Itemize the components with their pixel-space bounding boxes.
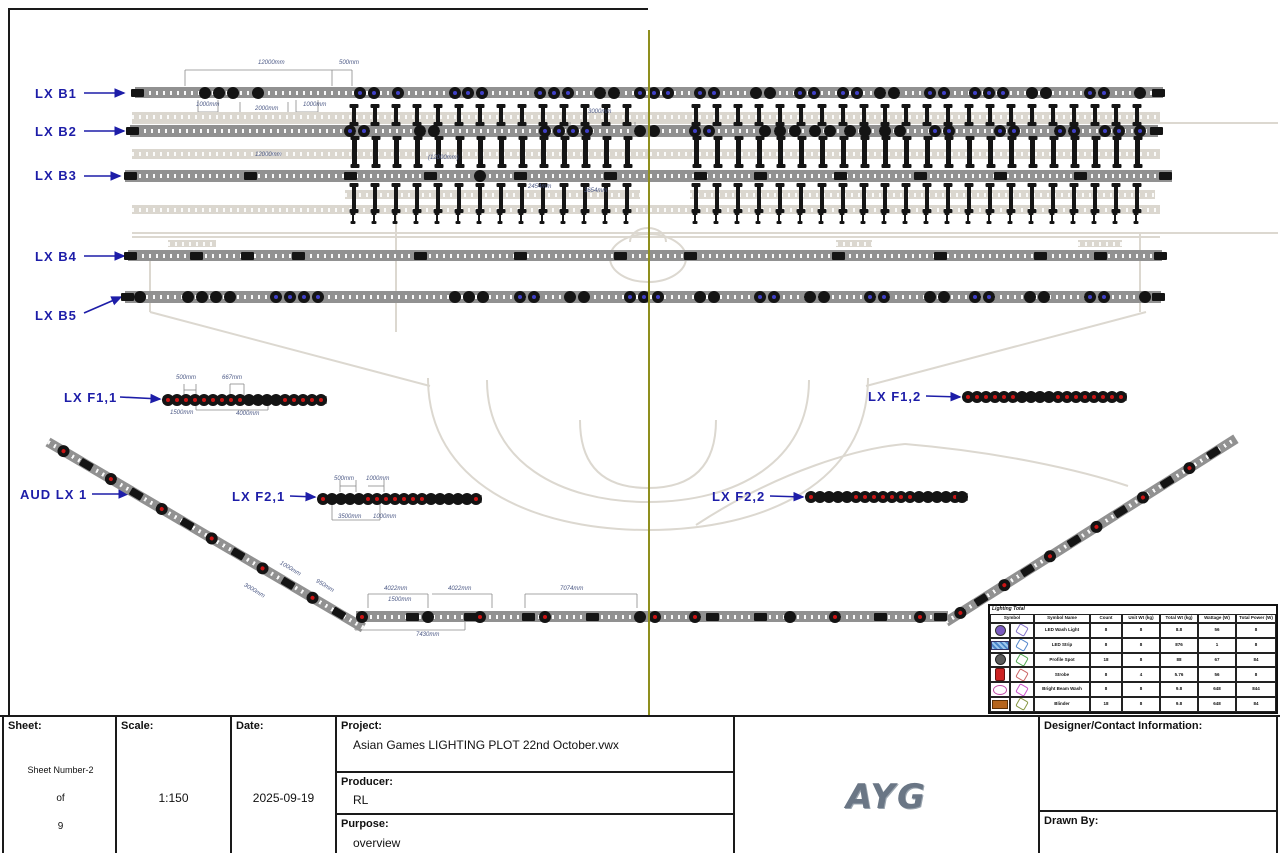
legend-value: 18 [1090, 697, 1122, 712]
fixture [1020, 564, 1035, 578]
fixture [824, 125, 836, 137]
hanging-fixture [1114, 214, 1116, 222]
fixture [943, 125, 955, 137]
fixture [562, 87, 574, 99]
fixture [1134, 125, 1146, 137]
fixture [794, 87, 806, 99]
fixture [888, 87, 900, 99]
fixture [750, 87, 762, 99]
hanging-fixture [352, 185, 356, 211]
hanging-fixture [352, 106, 356, 124]
fixture [121, 293, 134, 301]
dimension-label: 1000mm [303, 102, 326, 108]
hanging-fixture [1030, 214, 1032, 222]
hanging-fixture [862, 106, 866, 124]
leader-arrow [120, 397, 160, 399]
hanging-fixture [736, 138, 741, 166]
legend-fixture-icon [1010, 697, 1034, 712]
fixture [1098, 87, 1110, 99]
fixture [634, 87, 646, 99]
hanging-fixture [457, 106, 461, 124]
fixture [180, 517, 195, 530]
divider [337, 771, 733, 773]
legend-fixture-icon [1010, 653, 1034, 668]
fixture [1135, 489, 1152, 506]
hanging-fixture [583, 106, 587, 124]
fixture [331, 606, 346, 619]
background-truss [132, 149, 1160, 159]
position-label: LX F1,2 [868, 389, 921, 404]
position-label: LX B5 [35, 308, 77, 323]
position-label: LX B4 [35, 249, 77, 264]
fixture [764, 87, 776, 99]
hanging-fixture [415, 214, 417, 222]
legend-title: Lighting Total [992, 606, 1025, 612]
fixture [809, 125, 821, 137]
hanging-fixture [625, 185, 629, 211]
legend-value: 5.76 [1160, 667, 1198, 682]
hanging-fixture [904, 106, 908, 124]
fixture-glyph-icon [1015, 683, 1029, 697]
fixture [844, 125, 856, 137]
legend-fixture-icon [1010, 638, 1034, 653]
hanging-fixture [1030, 185, 1034, 211]
scale-label: Scale: [121, 720, 153, 732]
fixture [414, 125, 426, 137]
fixture [859, 125, 871, 137]
fixture [874, 87, 886, 99]
hanging-fixture [736, 214, 738, 222]
hanging-fixture [820, 214, 822, 222]
legend-value: 8.8 [1160, 623, 1198, 638]
legend-value: 8 [1236, 667, 1276, 682]
dimension-label: (12000mm) [428, 155, 459, 161]
hanging-fixture [478, 185, 482, 211]
hanging-fixture [373, 214, 375, 222]
hanging-fixture [862, 138, 867, 166]
fixture [476, 87, 488, 99]
hanging-fixture [478, 214, 480, 222]
hanging-fixture [925, 185, 929, 211]
hanging-fixture [541, 214, 543, 222]
fixture [292, 252, 305, 260]
dimension-label: 500mm [334, 476, 354, 482]
legend-header: Count [1090, 614, 1122, 623]
legend-value: 844 [1236, 682, 1276, 697]
legend-value: 8 [1090, 667, 1122, 682]
fixture [514, 172, 527, 180]
divider [337, 813, 733, 815]
background-truss [132, 112, 1160, 122]
fixture [344, 172, 357, 180]
fixture [983, 291, 995, 303]
fixture [548, 87, 560, 99]
fixture [878, 291, 890, 303]
dimension-label: 1000mm [366, 476, 389, 482]
fixture [634, 125, 646, 137]
hanging-fixture [736, 185, 740, 211]
fixture [874, 613, 887, 621]
fixture [934, 613, 947, 621]
fixture [974, 593, 989, 607]
legend-value: 88 [1160, 653, 1198, 668]
fixture [1152, 89, 1165, 97]
fixture [818, 291, 830, 303]
fixture [997, 87, 1009, 99]
legend-value: 84 [1236, 653, 1276, 668]
fixture [586, 613, 599, 621]
hanging-fixture [1114, 138, 1119, 166]
dimension-label: 3654mm [584, 188, 607, 194]
fixture [204, 530, 220, 546]
hanging-fixture [1072, 214, 1074, 222]
hanging-fixture [757, 106, 761, 124]
fixture [662, 87, 674, 99]
stage-arc [696, 444, 905, 525]
hanging-fixture [1093, 214, 1095, 222]
fixture [1034, 252, 1047, 260]
legend-value: 9.8 [1160, 697, 1198, 712]
legend-value: 9.8 [1160, 682, 1198, 697]
sheet-of-label: of [4, 793, 117, 804]
legend-value: 648 [1198, 697, 1236, 712]
fixture [477, 291, 489, 303]
hanging-fixture [715, 138, 720, 166]
fixture [474, 611, 486, 623]
hanging-fixture [694, 106, 698, 124]
fixture [924, 291, 936, 303]
fixture [56, 443, 72, 459]
fixture [708, 291, 720, 303]
legend-value: 8 [1090, 623, 1122, 638]
hanging-fixture [541, 106, 545, 124]
fixture [210, 291, 222, 303]
hanging-fixture [520, 106, 524, 124]
fixture [1159, 476, 1174, 490]
date-label: Date: [236, 720, 264, 732]
fixture [392, 87, 404, 99]
producer-value: RL [353, 793, 368, 807]
gray-circle-icon [995, 654, 1006, 665]
legend-value: 8 [1122, 638, 1160, 653]
purpose-label: Purpose: [341, 818, 389, 830]
leader-arrow [926, 396, 960, 397]
legend-header: Wattage (W) [1198, 614, 1236, 623]
sheet-number: Sheet Number-2 [4, 765, 117, 775]
fixture [649, 611, 661, 623]
fixture [914, 611, 926, 623]
legend-name: LED Wash Light [1034, 623, 1090, 638]
hanging-fixture [352, 214, 354, 222]
hanging-fixture [799, 214, 801, 222]
hanging-fixture [1051, 106, 1055, 124]
fixture [578, 291, 590, 303]
fixture [227, 87, 239, 99]
hanging-fixture [988, 214, 990, 222]
fixture [134, 291, 146, 303]
fixture [528, 291, 540, 303]
fixture [837, 87, 849, 99]
fixture-glyph-icon [1015, 624, 1029, 638]
fixture [1099, 125, 1111, 137]
fixture [768, 291, 780, 303]
legend-value: 84 [1236, 697, 1276, 712]
truss-bar [128, 250, 1162, 261]
scale-value: 1:150 [117, 791, 230, 805]
legend-value: 876 [1160, 638, 1198, 653]
fixture [280, 577, 295, 590]
hanging-fixture [394, 138, 399, 166]
legend-header: Unit Wt (kg) [1122, 614, 1160, 623]
leader-arrow [290, 496, 315, 497]
fixture [1150, 127, 1163, 135]
dimension-label: 1000mm [196, 102, 219, 108]
hanging-fixture [436, 214, 438, 222]
hanging-fixture [457, 214, 459, 222]
fixture [298, 291, 310, 303]
fixture [129, 488, 144, 501]
fixture [567, 125, 579, 137]
fixture [938, 291, 950, 303]
legend-header: Total Wt (kg) [1160, 614, 1198, 623]
blue-strip-icon [991, 641, 1009, 650]
fixture [254, 560, 270, 576]
legend-value: 8 [1122, 653, 1160, 668]
fixture [1066, 534, 1081, 548]
legend-name: Strobe [1034, 667, 1090, 682]
fixture [462, 87, 474, 99]
hanging-fixture [415, 138, 420, 166]
hanging-fixture [946, 106, 950, 124]
hanging-fixture [1051, 185, 1055, 211]
dimension-label: 3000mm [242, 582, 265, 599]
dimension-label: 2454mm [528, 184, 551, 190]
hanging-fixture [415, 185, 419, 211]
diagonal-truss-bar [943, 434, 1238, 626]
fixture [564, 291, 576, 303]
background-truss [1078, 240, 1122, 247]
fixture [1038, 291, 1050, 303]
dimension-label: 500mm [176, 375, 196, 381]
hanging-fixture [1135, 185, 1139, 211]
hanging-fixture [967, 138, 972, 166]
fixture [213, 87, 225, 99]
fixture [703, 125, 715, 137]
designer-label: Designer/Contact Information: [1044, 720, 1202, 732]
hanging-fixture [562, 214, 564, 222]
fixture [1026, 87, 1038, 99]
hanging-fixture [604, 138, 609, 166]
legend-fixture-icon [1010, 623, 1034, 638]
divider [1040, 810, 1276, 812]
hanging-fixture [436, 138, 441, 166]
legend-symbol-swatch [990, 653, 1010, 668]
fixture [470, 493, 482, 505]
hanging-fixture [1093, 138, 1098, 166]
hanging-fixture [352, 138, 357, 166]
hanging-fixture [946, 214, 948, 222]
fixture [1206, 446, 1221, 460]
stage-arc [866, 312, 1146, 386]
fixture [414, 252, 427, 260]
hanging-fixture [583, 138, 588, 166]
fixture [1008, 125, 1020, 137]
lighting-plot-sheet: 12000mm500mm1000mm2000mm1000mm3000mm1200… [0, 0, 1280, 853]
purple-circle-icon [995, 625, 1006, 636]
legend-header: Symbol Name [1034, 614, 1090, 623]
legend-value: 18 [1090, 653, 1122, 668]
fixture [759, 125, 771, 137]
hanging-fixture [457, 185, 461, 211]
stage-arc [905, 444, 1128, 486]
position-label: LX B1 [35, 86, 77, 101]
fixture [594, 87, 606, 99]
dimension-label: 1500mm [170, 410, 193, 416]
dimension-label: 4022mm [384, 586, 407, 592]
hanging-fixture [715, 214, 717, 222]
hanging-fixture [715, 185, 719, 211]
dimension-label: 500mm [339, 60, 359, 66]
dimension-label: 3500mm [338, 514, 361, 520]
hanging-fixture [499, 214, 501, 222]
fixture [553, 125, 565, 137]
fixture [708, 87, 720, 99]
hanging-fixture [799, 106, 803, 124]
fixture [126, 127, 139, 135]
legend-value: 8 [1090, 638, 1122, 653]
dimension-label: 4000mm [236, 411, 259, 417]
fixture [834, 172, 847, 180]
dimension-label: 667mm [222, 375, 242, 381]
fixture [1040, 87, 1052, 99]
fixture [952, 605, 969, 622]
hanging-fixture [1009, 185, 1013, 211]
hanging-fixture [1030, 106, 1034, 124]
hanging-fixture [862, 185, 866, 211]
fixture [789, 125, 801, 137]
hanging-fixture [1072, 185, 1076, 211]
hanging-fixture [562, 106, 566, 124]
hanging-fixture [394, 106, 398, 124]
hanging-fixture [436, 106, 440, 124]
hanging-fixture [562, 138, 567, 166]
fixture [422, 611, 434, 623]
logo-cell: AYG [735, 717, 1040, 853]
hanging-fixture [499, 185, 503, 211]
hanging-fixture [373, 138, 378, 166]
fixture [539, 125, 551, 137]
legend-header: Symbol [990, 614, 1034, 623]
position-label: LX B2 [35, 124, 77, 139]
hanging-fixture [457, 138, 462, 166]
hanging-fixture [778, 106, 782, 124]
project-label: Project: [341, 720, 382, 732]
dimension-label: 12000mm [258, 60, 285, 66]
legend-value: 1 [1198, 638, 1236, 653]
fixture [1094, 252, 1107, 260]
hanging-fixture [625, 106, 629, 124]
fixture [344, 125, 356, 137]
hanging-fixture [841, 214, 843, 222]
dimension-label: 7430mm [416, 632, 439, 638]
fixture [315, 394, 327, 406]
fixture [103, 471, 119, 487]
hanging-fixture [499, 138, 504, 166]
legend-value: 56 [1198, 667, 1236, 682]
fixture [808, 87, 820, 99]
background-truss [168, 240, 216, 247]
dimension-label: 1000mm [373, 514, 396, 520]
fixture [754, 613, 767, 621]
legend-value: 8 [1122, 682, 1160, 697]
hanging-fixture [799, 138, 804, 166]
project-value: Asian Games LIGHTING PLOT 22nd October.v… [353, 738, 619, 752]
fixture [929, 125, 941, 137]
hanging-fixture [1009, 138, 1014, 166]
fixture [1074, 172, 1087, 180]
hanging-fixture [694, 214, 696, 222]
hanging-fixture [841, 138, 846, 166]
hanging-fixture [967, 214, 969, 222]
legend-header: Total Power (W) [1236, 614, 1276, 623]
legend-value: 8 [1122, 697, 1160, 712]
fixture [354, 87, 366, 99]
hanging-fixture [1051, 138, 1056, 166]
title-block: Sheet: Sheet Number-2 of 9 Scale: 1:150 … [0, 715, 1280, 853]
fixture [449, 87, 461, 99]
scale-cell: Scale: 1:150 [117, 717, 232, 853]
fixture [356, 611, 368, 623]
fixture [79, 458, 94, 471]
legend-value: 8 [1122, 623, 1160, 638]
fixture [1113, 505, 1128, 519]
fixture [652, 291, 664, 303]
hanging-fixture [841, 106, 845, 124]
fixture [774, 125, 786, 137]
fixture [406, 613, 419, 621]
hanging-fixture [1072, 138, 1077, 166]
fixture [1054, 125, 1066, 137]
fixture [1084, 87, 1096, 99]
center-line [648, 30, 650, 715]
fixture [624, 291, 636, 303]
dimension-label: 7074mm [560, 586, 583, 592]
hanging-fixture [946, 185, 950, 211]
hanging-fixture [1009, 214, 1011, 222]
fixture-glyph-icon [1015, 638, 1029, 652]
fixture [312, 291, 324, 303]
drawn-by-label: Drawn By: [1044, 815, 1098, 827]
fixture [1115, 391, 1127, 403]
hanging-fixture [604, 214, 606, 222]
hanging-fixture [904, 214, 906, 222]
project-cell: Project: Asian Games LIGHTING PLOT 22nd … [337, 717, 735, 853]
fixture [224, 291, 236, 303]
fixture [534, 87, 546, 99]
fixture [851, 87, 863, 99]
fixture [1134, 87, 1146, 99]
fixture [1084, 291, 1096, 303]
hanging-fixture [541, 138, 546, 166]
hanging-fixture [478, 106, 482, 124]
fixture [124, 252, 137, 260]
hanging-fixture [715, 106, 719, 124]
fixture [938, 87, 950, 99]
leader-arrow [84, 297, 121, 313]
hanging-fixture [736, 106, 740, 124]
legend-name: Blinder [1034, 697, 1090, 712]
fixture-glyph-icon [1015, 668, 1029, 682]
